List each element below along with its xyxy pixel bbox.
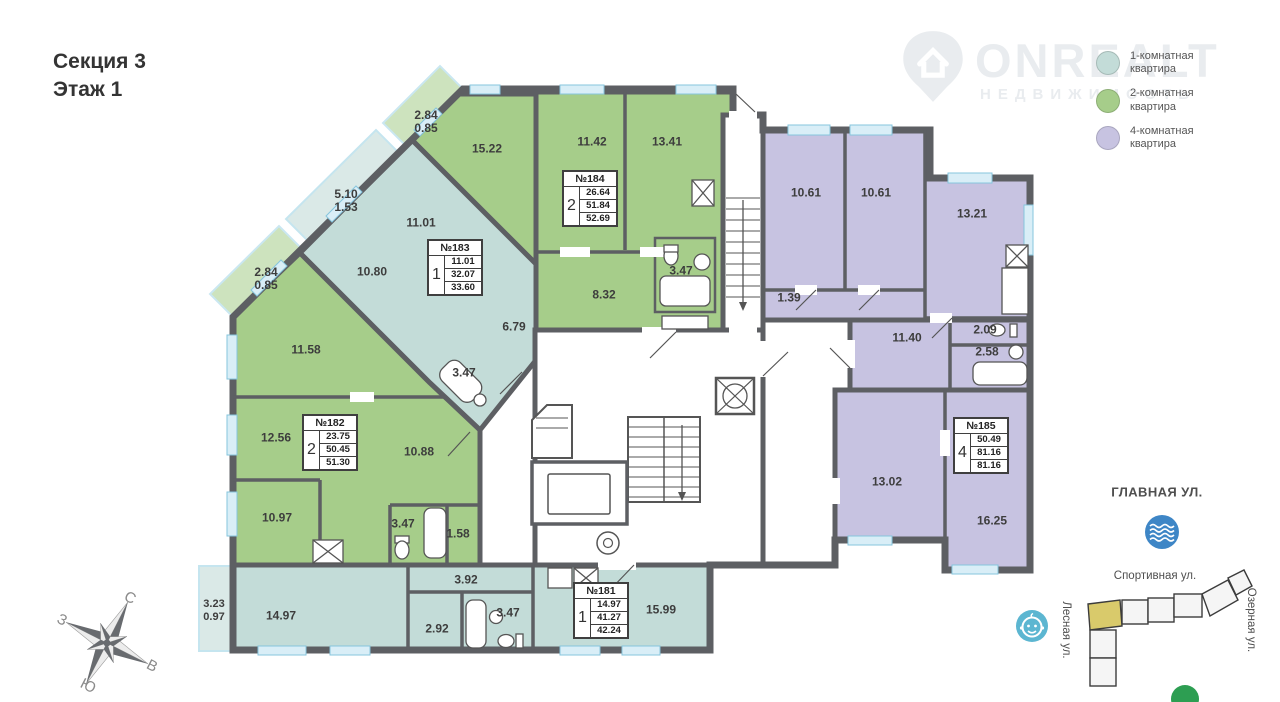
apartment-number: №185 — [955, 419, 1007, 434]
room-area-label: 16.25 — [977, 515, 1007, 528]
legend-label: 1-комнатная квартира — [1130, 50, 1194, 76]
room-area-label: 10.88 — [404, 446, 434, 459]
park-icon — [1171, 685, 1199, 702]
room-area-label: 13.02 — [872, 476, 902, 489]
apartment-card-182[interactable]: №182 2 23.75 50.45 51.30 — [302, 414, 358, 471]
room-area-label: 2.09 — [973, 324, 996, 337]
room-area-label: 11.58 — [291, 344, 320, 357]
room-area-label: 2.58 — [975, 346, 998, 359]
street-label-glavnaya: ГЛАВНАЯ УЛ. — [1111, 485, 1202, 500]
balcony-area-label: 3.23 0.97 — [203, 598, 224, 624]
apartment-card-181[interactable]: №181 1 14.97 41.27 42.24 — [573, 582, 629, 639]
apartment-rooms-count: 1 — [429, 256, 444, 294]
apartment-living-area: 26.64 — [580, 187, 616, 200]
room-area-label: 3.47 — [391, 518, 414, 531]
street-label-sportivnaya: Спортивная ул. — [1114, 570, 1196, 582]
balcony-area-label: 2.84 0.85 — [414, 109, 437, 135]
legend-swatch-4room-icon — [1096, 126, 1120, 150]
compass-rose — [45, 581, 169, 702]
room-area-label: 14.97 — [266, 610, 296, 623]
apartment-area: 50.45 — [320, 444, 356, 457]
apartment-card-183[interactable]: №183 1 11.01 32.07 33.60 — [427, 239, 483, 296]
legend-item-2room: 2-комнатная квартира — [1096, 87, 1194, 113]
legend: 1-комнатная квартира 2-комнатная квартир… — [1096, 50, 1194, 162]
apartment-area: 41.27 — [591, 612, 627, 625]
balcony-area-label: 5.10 1.53 — [334, 188, 357, 214]
apartment-living-area: 11.01 — [445, 256, 481, 269]
main-stairs — [628, 417, 700, 502]
apartment-total-area: 52.69 — [580, 213, 616, 225]
page-title: Секция 3 Этаж 1 — [53, 48, 146, 104]
room-area-label: 12.56 — [261, 432, 291, 445]
room-area-label: 13.41 — [652, 136, 682, 149]
apartment-total-area: 51.30 — [320, 457, 356, 469]
room-area-label: 1.58 — [446, 528, 469, 541]
site-plan[interactable] — [1088, 570, 1252, 686]
room-area-label: 15.99 — [646, 604, 676, 617]
apartment-rooms-count: 1 — [575, 599, 590, 637]
apartment-rooms-count: 2 — [564, 187, 579, 225]
legend-swatch-1room-icon — [1096, 51, 1120, 75]
street-label-ozernaya: Озерная ул. — [1245, 588, 1257, 652]
room-area-label: 2.92 — [425, 623, 448, 636]
apartment-total-area: 81.16 — [971, 460, 1007, 472]
apartment-number: №184 — [564, 172, 616, 187]
legend-label: 4-комнатная квартира — [1130, 125, 1194, 151]
apartment-living-area: 50.49 — [971, 434, 1007, 447]
legend-item-4room: 4-комнатная квартира — [1096, 125, 1194, 151]
floor-title: Этаж 1 — [53, 76, 146, 104]
apartment-number: №182 — [304, 416, 356, 431]
current-section-highlight[interactable] — [1088, 600, 1122, 630]
balcony-area-label: 2.84 0.85 — [254, 266, 277, 292]
room-area-label: 13.21 — [957, 208, 987, 221]
room-area-label: 3.47 — [496, 607, 519, 620]
elevator — [532, 462, 627, 524]
storage-closet — [532, 405, 572, 458]
section-title: Секция 3 — [53, 48, 146, 76]
apartment-area: 81.16 — [971, 447, 1007, 460]
kindergarten-icon — [1016, 610, 1048, 642]
apartment-area: 32.07 — [445, 269, 481, 282]
room-area-label: 10.97 — [262, 512, 292, 525]
room-area-label: 6.79 — [502, 321, 525, 334]
legend-swatch-2room-icon — [1096, 89, 1120, 113]
apartment-rooms-count: 4 — [955, 434, 970, 472]
room-area-label: 10.61 — [861, 187, 891, 200]
room-area-label: 11.01 — [406, 217, 435, 230]
legend-label: 2-комнатная квартира — [1130, 87, 1194, 113]
room-area-label: 15.22 — [472, 143, 502, 156]
water-feature-icon — [1145, 515, 1179, 549]
legend-item-1room: 1-комнатная квартира — [1096, 50, 1194, 76]
ventilation-shaft-icon — [716, 378, 754, 414]
apartment-card-185[interactable]: №185 4 50.49 81.16 81.16 — [953, 417, 1009, 474]
room-area-label: 11.40 — [892, 332, 921, 345]
room-area-label: 11.42 — [577, 136, 606, 149]
apartment-number: №183 — [429, 241, 481, 256]
apartment-number: №181 — [575, 584, 627, 599]
apartment-living-area: 14.97 — [591, 599, 627, 612]
floorplan-page: ONREALT НЕДВИЖИМОСТЬ Секция 3 Этаж 1 1-к… — [0, 0, 1280, 702]
room-area-label: 3.92 — [454, 574, 477, 587]
room-area-label: 10.61 — [791, 187, 821, 200]
trash-chute-icon — [597, 532, 619, 554]
room-area-label: 3.47 — [669, 265, 692, 278]
room-area-label: 8.32 — [592, 289, 615, 302]
room-area-label: 3.47 — [452, 367, 475, 380]
apartment-rooms-count: 2 — [304, 431, 319, 469]
room-area-label: 1.39 — [777, 292, 800, 305]
apartment-card-184[interactable]: №184 2 26.64 51.84 52.69 — [562, 170, 618, 227]
apartment-total-area: 42.24 — [591, 625, 627, 637]
room-area-label: 10.80 — [357, 266, 387, 279]
apartment-area: 51.84 — [580, 200, 616, 213]
street-label-lesnaya: Лесная ул. — [1060, 601, 1072, 658]
floor-plan — [0, 0, 1280, 702]
apartment-total-area: 33.60 — [445, 282, 481, 294]
apartment-living-area: 23.75 — [320, 431, 356, 444]
